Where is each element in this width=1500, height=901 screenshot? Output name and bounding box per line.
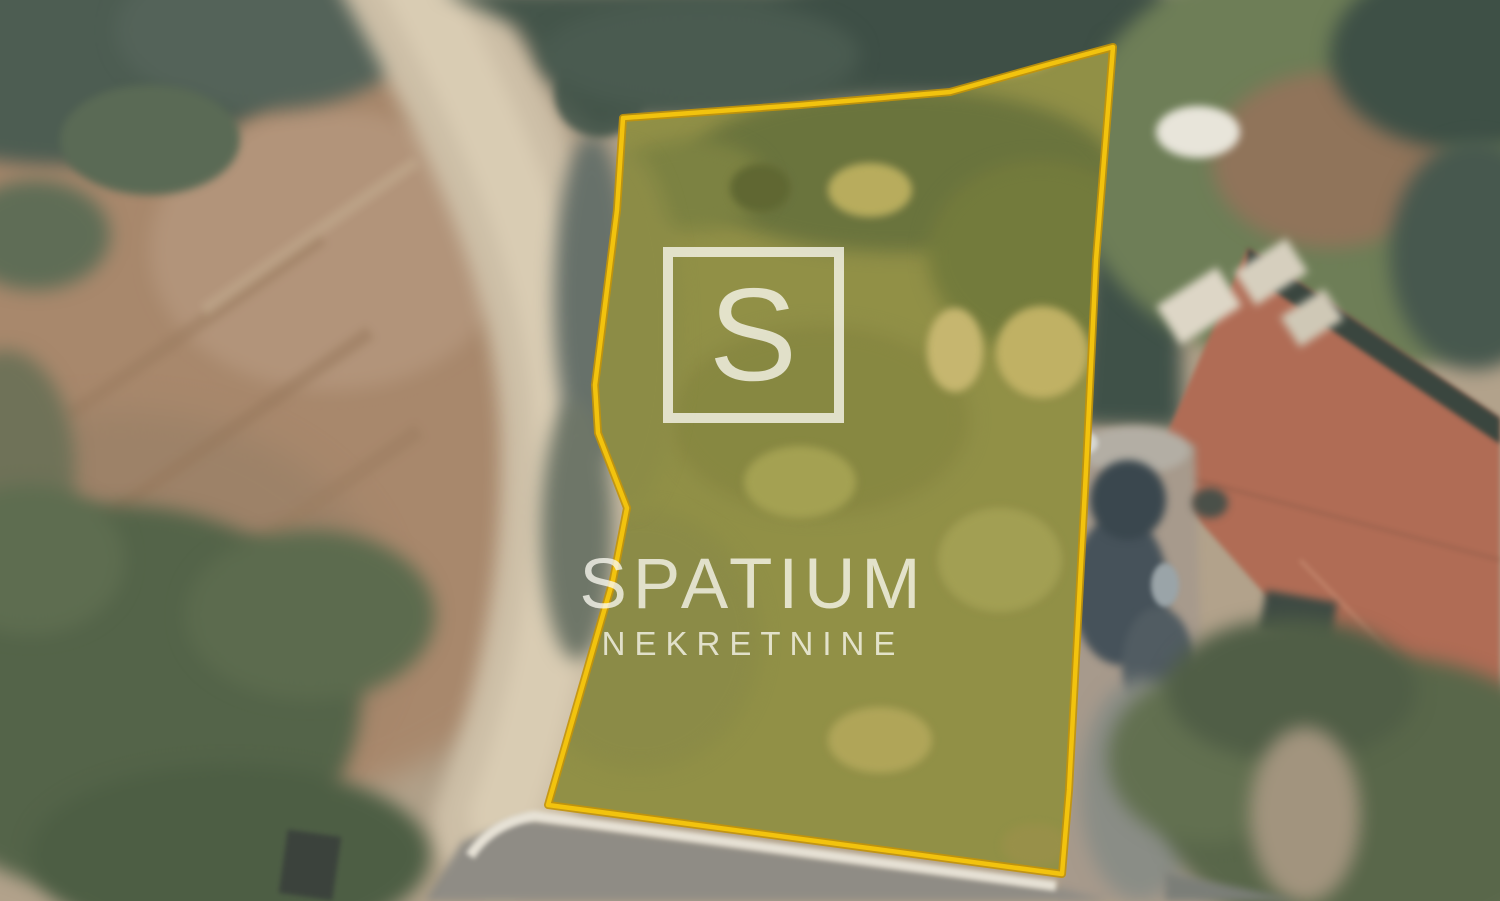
satellite-imagery xyxy=(0,0,1500,901)
parcel-fill-tint xyxy=(548,47,1113,874)
aerial-photo: S SPATIUM NEKRETNINE xyxy=(0,0,1500,901)
trailer-object xyxy=(279,830,341,901)
